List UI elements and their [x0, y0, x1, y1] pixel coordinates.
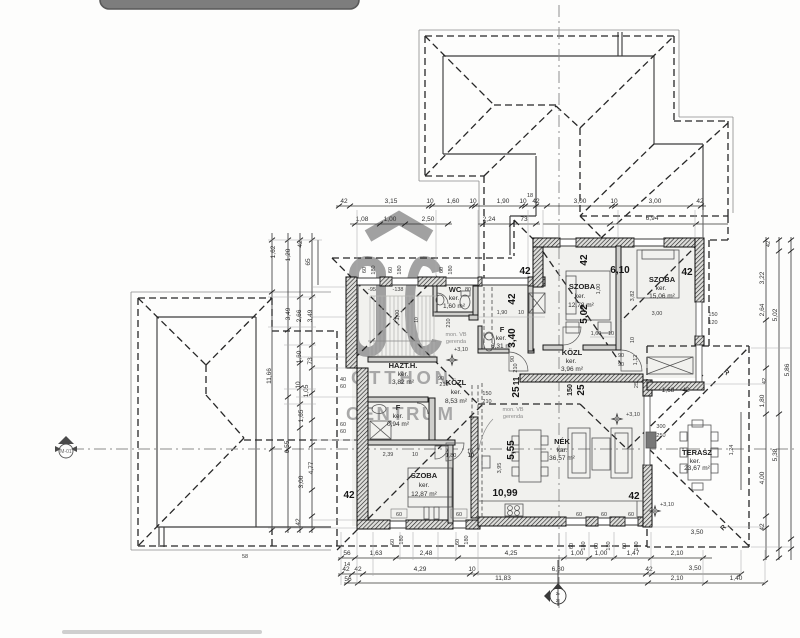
- svg-text:1,80: 1,80: [759, 394, 766, 407]
- svg-text:8,53 m²: 8,53 m²: [445, 398, 468, 405]
- svg-text:3,00: 3,00: [298, 475, 305, 488]
- svg-text:3,95: 3,95: [497, 463, 503, 474]
- svg-text:6,10: 6,10: [610, 265, 630, 276]
- svg-text:F: F: [500, 325, 505, 334]
- svg-text:180: 180: [581, 541, 587, 550]
- svg-text:1,60 m²: 1,60 m²: [443, 303, 466, 310]
- svg-text:2,50: 2,50: [422, 216, 435, 223]
- svg-text:5,02: 5,02: [579, 304, 590, 324]
- svg-text:150: 150: [482, 391, 491, 397]
- svg-text:90: 90: [618, 362, 624, 368]
- svg-text:36,57 m²: 36,57 m²: [549, 455, 575, 462]
- svg-text:1,68: 1,68: [662, 387, 675, 394]
- svg-text:2,39: 2,39: [383, 452, 394, 458]
- svg-text:42: 42: [519, 266, 531, 277]
- svg-text:1,20: 1,20: [285, 248, 292, 261]
- svg-text:ker.: ker.: [656, 285, 667, 292]
- svg-text:10,99: 10,99: [492, 488, 517, 499]
- svg-text:42: 42: [682, 387, 690, 394]
- svg-text:250: 250: [656, 433, 665, 439]
- svg-text:4,00: 4,00: [759, 471, 766, 484]
- svg-text:60: 60: [390, 539, 396, 545]
- svg-text:210: 210: [446, 318, 452, 327]
- svg-text:42: 42: [696, 198, 704, 205]
- svg-text:120: 120: [708, 320, 717, 326]
- svg-text:150: 150: [708, 312, 717, 318]
- svg-text:60: 60: [456, 512, 462, 518]
- svg-text:0,94 m²: 0,94 m²: [387, 421, 410, 428]
- svg-text:10: 10: [610, 198, 618, 205]
- svg-text:kar.: kar.: [557, 447, 568, 454]
- svg-text:42: 42: [628, 491, 640, 502]
- svg-text:11,66: 11,66: [266, 368, 273, 384]
- svg-text:90: 90: [618, 353, 624, 359]
- svg-text:15,06 m²: 15,06 m²: [649, 293, 675, 300]
- svg-text:+3,10: +3,10: [626, 412, 640, 418]
- svg-text:60: 60: [601, 512, 607, 518]
- svg-text:180: 180: [399, 535, 405, 544]
- svg-text:10: 10: [467, 449, 473, 455]
- svg-text:-138: -138: [392, 287, 403, 293]
- svg-text:5,38: 5,38: [772, 448, 779, 461]
- svg-text:ker.: ker.: [449, 295, 460, 302]
- svg-text:ker.: ker.: [690, 458, 701, 465]
- svg-text:2,24: 2,24: [483, 216, 496, 223]
- svg-text:2,10: 2,10: [671, 550, 684, 557]
- svg-text:ker.: ker.: [398, 371, 409, 378]
- svg-text:1,08: 1,08: [356, 216, 369, 223]
- svg-text:4,29: 4,29: [414, 566, 427, 573]
- svg-text:3,50: 3,50: [691, 529, 704, 536]
- svg-text:42: 42: [507, 293, 518, 305]
- svg-text:10: 10: [518, 310, 524, 316]
- svg-text:TERASZ: TERASZ: [682, 448, 712, 457]
- svg-text:42: 42: [340, 198, 348, 205]
- svg-text:42: 42: [295, 518, 302, 526]
- svg-text:10: 10: [469, 198, 477, 205]
- svg-text:1,90: 1,90: [497, 198, 510, 205]
- svg-text:3,00: 3,00: [649, 198, 662, 205]
- svg-text:6,55: 6,55: [284, 440, 291, 453]
- svg-text:65: 65: [305, 258, 312, 266]
- svg-text:1,90: 1,90: [497, 310, 508, 316]
- svg-text:60: 60: [388, 267, 394, 273]
- svg-text:mon. VB: mon. VB: [502, 407, 523, 413]
- svg-text:11: 11: [512, 376, 521, 385]
- svg-text:1,60: 1,60: [591, 331, 602, 337]
- svg-text:10: 10: [519, 198, 527, 205]
- svg-text:1,00: 1,00: [395, 310, 401, 321]
- svg-text:1,00: 1,00: [384, 216, 397, 223]
- svg-text:60: 60: [622, 543, 628, 549]
- svg-text:11,83: 11,83: [495, 575, 511, 582]
- svg-text:180: 180: [464, 535, 470, 544]
- svg-text:KÖZL: KÖZL: [562, 348, 583, 357]
- svg-text:3,82 m²: 3,82 m²: [392, 379, 415, 386]
- svg-text:42: 42: [645, 566, 653, 573]
- svg-text:60: 60: [594, 543, 600, 549]
- svg-text:3,50: 3,50: [689, 565, 702, 572]
- svg-text:12,87 m²: 12,87 m²: [411, 491, 437, 498]
- svg-text:25: 25: [634, 382, 640, 388]
- svg-text:SZOBA: SZOBA: [411, 471, 438, 480]
- svg-text:60: 60: [439, 267, 445, 273]
- svg-text:1,00: 1,00: [596, 284, 602, 295]
- svg-text:1,05: 1,05: [303, 384, 310, 397]
- svg-text:180: 180: [448, 265, 454, 274]
- svg-text:60: 60: [340, 384, 346, 390]
- svg-text:-95: -95: [368, 287, 376, 293]
- svg-text:2,48: 2,48: [420, 550, 433, 557]
- svg-text:1,40: 1,40: [730, 575, 743, 582]
- svg-text:gerenda: gerenda: [446, 339, 467, 345]
- svg-text:10: 10: [426, 198, 434, 205]
- svg-text:+3,10: +3,10: [660, 502, 674, 508]
- svg-text:1,62: 1,62: [270, 245, 277, 258]
- svg-text:5,86: 5,86: [784, 363, 791, 376]
- svg-text:80: 80: [465, 287, 471, 293]
- svg-text:300: 300: [656, 424, 665, 430]
- svg-text:+3,10: +3,10: [454, 347, 468, 353]
- svg-text:10: 10: [412, 452, 418, 458]
- svg-text:SZOBA: SZOBA: [649, 275, 676, 284]
- svg-text:10: 10: [608, 331, 614, 337]
- svg-text:60: 60: [340, 422, 346, 428]
- svg-text:60: 60: [362, 267, 368, 273]
- svg-text:WC: WC: [449, 285, 462, 294]
- svg-text:10: 10: [468, 566, 476, 573]
- svg-text:3,00: 3,00: [574, 198, 587, 205]
- svg-text:60: 60: [396, 512, 402, 518]
- svg-text:3,82: 3,82: [630, 291, 636, 302]
- svg-text:F: F: [396, 403, 401, 412]
- svg-text:gerenda: gerenda: [503, 414, 524, 420]
- svg-text:ker.: ker.: [496, 335, 507, 342]
- svg-text:ker.: ker.: [419, 482, 430, 489]
- svg-text:180: 180: [634, 541, 640, 550]
- svg-text:25: 25: [576, 384, 587, 396]
- svg-text:42: 42: [762, 378, 768, 384]
- svg-text:42: 42: [532, 198, 540, 205]
- svg-text:10: 10: [630, 337, 636, 343]
- svg-text:210: 210: [482, 399, 491, 405]
- svg-text:73: 73: [520, 216, 528, 223]
- svg-text:3,40: 3,40: [507, 328, 518, 348]
- svg-text:42: 42: [354, 566, 362, 573]
- svg-text:3,49: 3,49: [307, 309, 314, 322]
- svg-text:90: 90: [510, 356, 516, 362]
- svg-text:5,55: 5,55: [506, 440, 517, 460]
- svg-text:3,00: 3,00: [652, 311, 663, 317]
- svg-text:2,10: 2,10: [671, 575, 684, 582]
- svg-text:180: 180: [397, 265, 403, 274]
- svg-text:2,66: 2,66: [296, 309, 303, 322]
- svg-text:23,67 m²: 23,67 m²: [684, 465, 710, 472]
- svg-text:60: 60: [628, 512, 634, 518]
- svg-text:210: 210: [513, 363, 519, 372]
- svg-text:1,24: 1,24: [729, 445, 735, 456]
- svg-text:56: 56: [343, 550, 351, 557]
- svg-text:18: 18: [527, 193, 533, 199]
- svg-text:1,80: 1,80: [446, 453, 457, 459]
- svg-text:2,64: 2,64: [759, 303, 766, 316]
- svg-text:180: 180: [371, 265, 377, 274]
- svg-text:58: 58: [242, 554, 248, 560]
- svg-text:mon. VB: mon. VB: [445, 332, 466, 338]
- svg-text:6,94: 6,94: [646, 215, 659, 222]
- svg-text:42: 42: [297, 240, 304, 248]
- svg-text:ker.: ker.: [566, 358, 577, 365]
- svg-text:42: 42: [681, 267, 693, 278]
- svg-text:4,77: 4,77: [308, 461, 315, 474]
- svg-text:60: 60: [340, 429, 346, 435]
- svg-text:3,15: 3,15: [385, 198, 398, 205]
- svg-text:HÁZT.H.: HÁZT.H.: [389, 361, 418, 370]
- svg-text:73: 73: [307, 357, 314, 365]
- svg-text:1,63: 1,63: [370, 550, 383, 557]
- svg-text:60: 60: [455, 539, 461, 545]
- svg-text:1,60: 1,60: [447, 198, 460, 205]
- svg-text:KÖZL: KÖZL: [446, 378, 467, 387]
- svg-text:42: 42: [579, 254, 590, 266]
- svg-text:4,25: 4,25: [505, 550, 518, 557]
- svg-text:180: 180: [606, 541, 612, 550]
- svg-text:1,12: 1,12: [633, 355, 639, 366]
- svg-text:150: 150: [567, 384, 574, 396]
- svg-text:3,22: 3,22: [759, 271, 766, 284]
- svg-text:10: 10: [295, 381, 302, 389]
- svg-text:42: 42: [766, 241, 772, 247]
- svg-text:ker.: ker.: [393, 413, 404, 420]
- svg-text:ker.: ker.: [575, 293, 586, 300]
- svg-text:ker.: ker.: [451, 389, 462, 396]
- svg-text:42: 42: [343, 490, 355, 501]
- svg-text:10: 10: [414, 317, 420, 323]
- svg-text:40: 40: [340, 377, 346, 383]
- svg-text:3,49: 3,49: [285, 307, 292, 320]
- svg-text:14: 14: [344, 562, 350, 568]
- svg-text:5,02: 5,02: [772, 308, 779, 321]
- svg-text:60: 60: [576, 512, 582, 518]
- svg-text:M-01: M-01: [60, 449, 72, 455]
- svg-text:56: 56: [344, 576, 352, 583]
- svg-text:1,65: 1,65: [298, 409, 305, 422]
- svg-text:NÉK: NÉK: [554, 437, 570, 446]
- svg-text:25: 25: [511, 386, 522, 398]
- svg-text:60: 60: [569, 543, 575, 549]
- svg-text:SZOBA: SZOBA: [569, 282, 596, 291]
- svg-text:3,96 m²: 3,96 m²: [561, 366, 584, 373]
